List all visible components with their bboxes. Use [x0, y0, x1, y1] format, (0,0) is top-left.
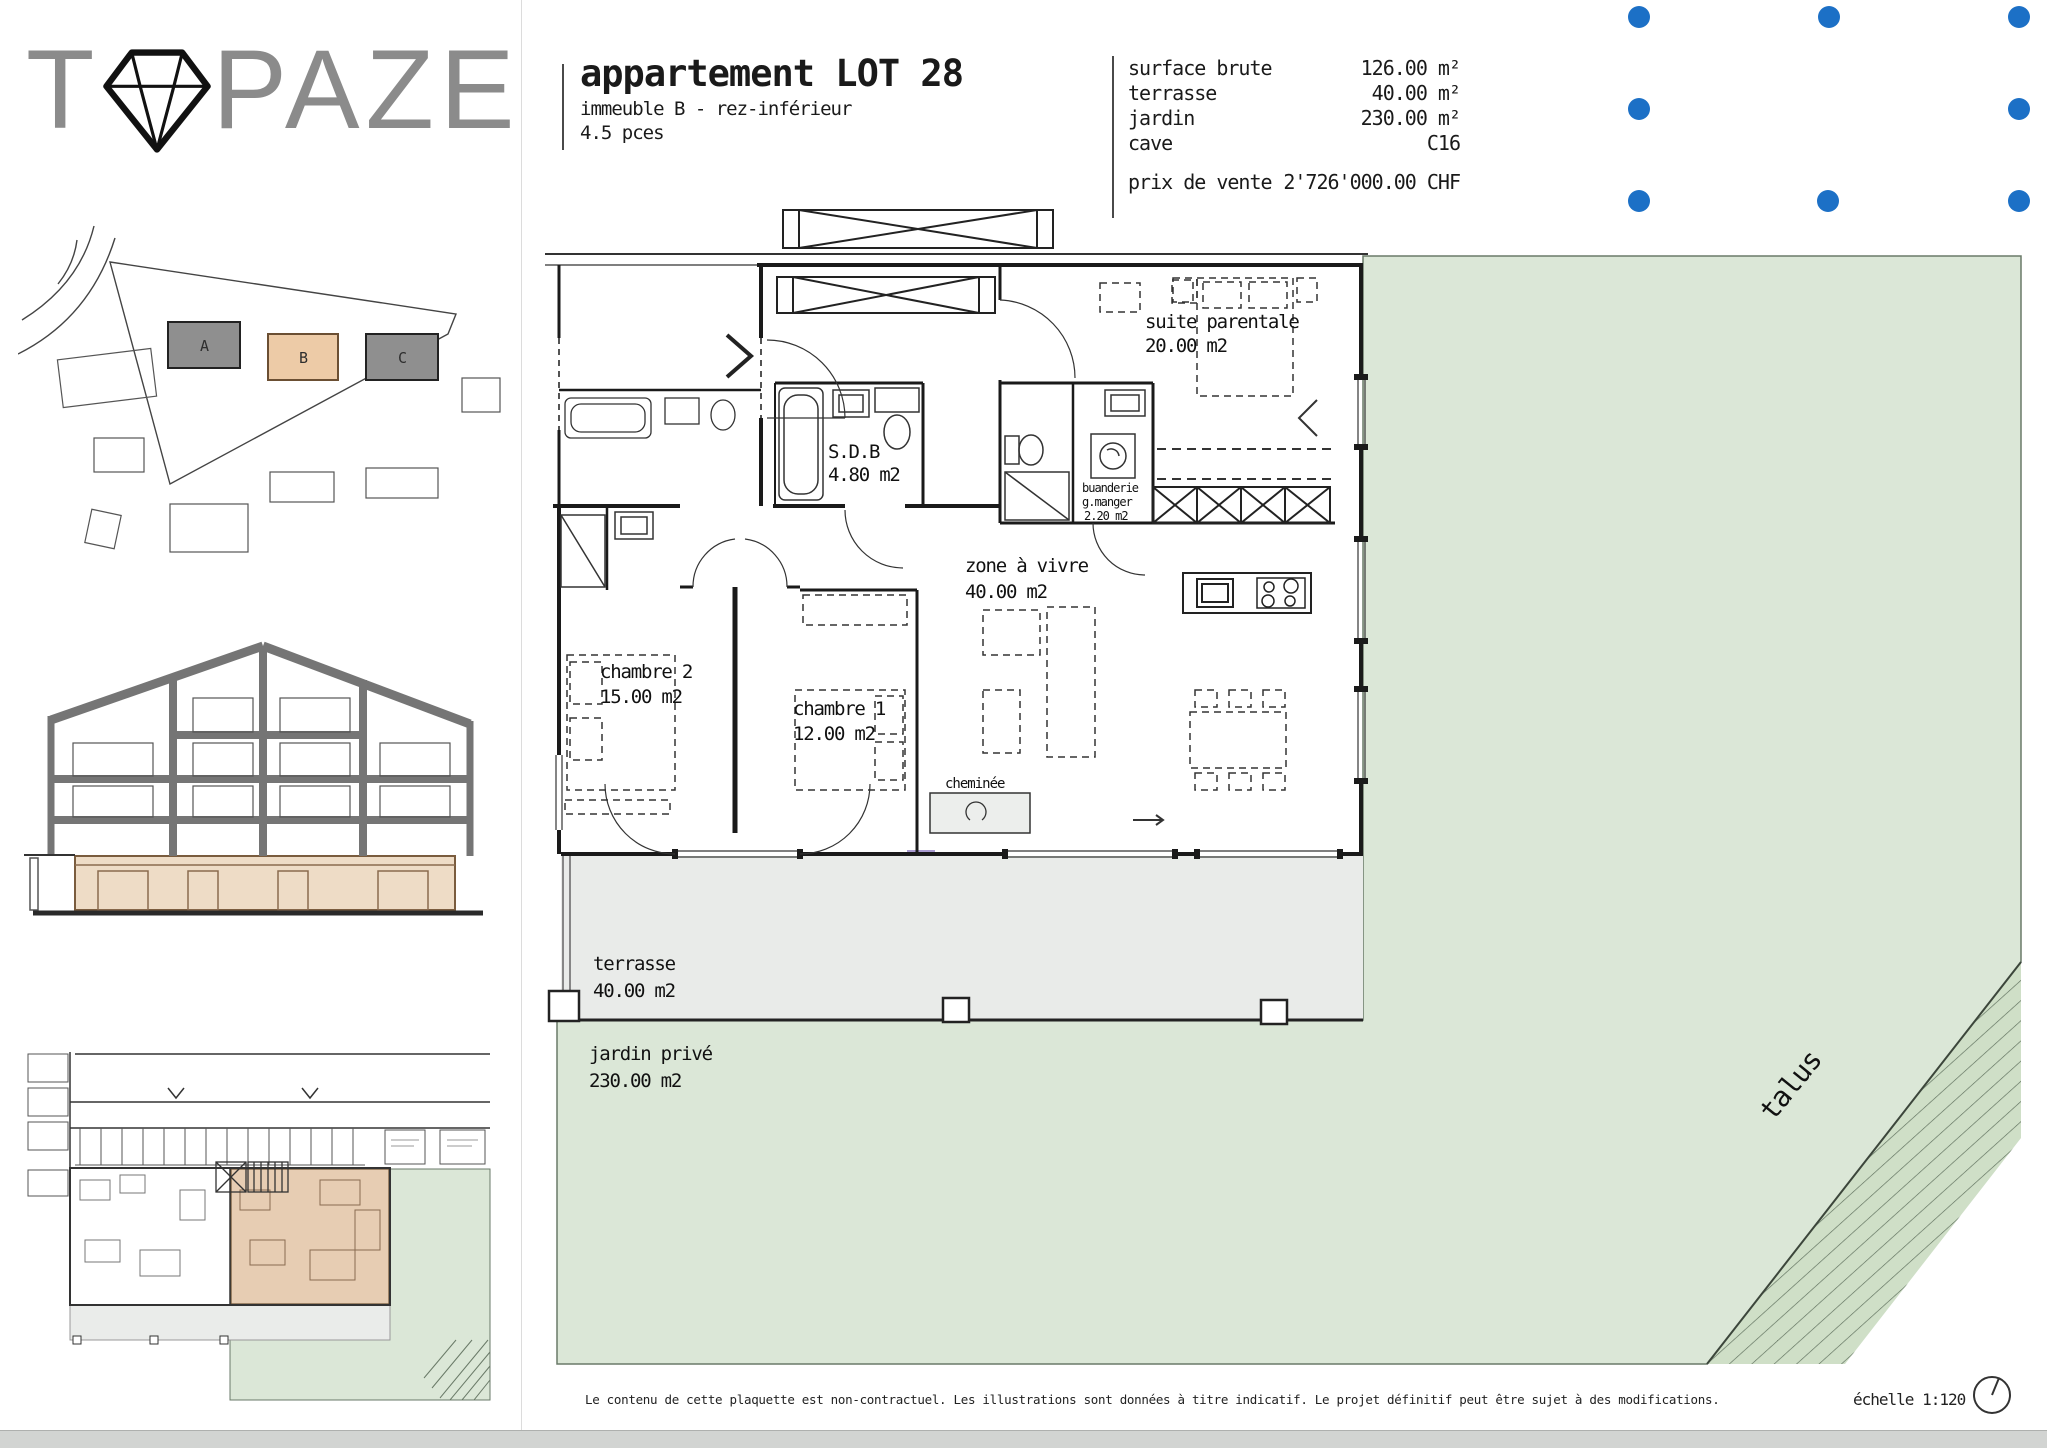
- sink-icon: [833, 390, 869, 417]
- chambre1-area: 12.00 m2: [793, 723, 875, 745]
- keyplan-highlighted-unit: [231, 1169, 389, 1304]
- main-floor-plan: talus: [545, 200, 2047, 1372]
- keyplan-terrace: [70, 1305, 390, 1340]
- table-row: jardin 230.00 m²: [1128, 106, 1460, 131]
- section-ground-floor: [75, 856, 455, 910]
- suite-label: suite parentale: [1145, 311, 1299, 333]
- key-plan: [20, 1040, 520, 1440]
- bathtub-icon: [779, 388, 823, 500]
- surface-value: 126.00 m²: [1361, 56, 1460, 81]
- sink-icon: [615, 512, 653, 539]
- sofa: [983, 607, 1095, 757]
- jardin-label: jardin: [1128, 106, 1194, 131]
- blue-dot: [2008, 98, 2030, 120]
- toilet-icon: [875, 388, 919, 449]
- price-label: prix de vente: [1128, 170, 1272, 195]
- surface-label: surface brute: [1128, 56, 1272, 81]
- entry-arrow-icon: [727, 335, 751, 377]
- scale-label: échelle 1:120: [1853, 1390, 1965, 1409]
- terrace-area: [561, 856, 1363, 1020]
- section-cut-mark: [302, 1088, 318, 1098]
- terrace-label: terrasse: [593, 953, 676, 975]
- garden-area-label: 230.00 m2: [589, 1070, 681, 1092]
- shower-icon: [561, 515, 605, 587]
- building-section: [18, 618, 518, 953]
- rooms-count: 4.5 pces: [580, 122, 664, 144]
- suite-area: 20.00 m2: [1145, 335, 1227, 357]
- title-rule: [562, 64, 564, 150]
- price-value: 2'726'000.00 CHF: [1283, 170, 1460, 195]
- garden-area: [557, 256, 2021, 1364]
- jardin-value: 230.00 m²: [1361, 106, 1460, 131]
- garden-label: jardin privé: [589, 1043, 713, 1065]
- north-compass-icon: [1965, 1366, 2021, 1422]
- toilet-icon: [1005, 435, 1043, 465]
- table-rule: [1112, 56, 1114, 218]
- building-b-label: B: [299, 349, 308, 367]
- logo-letter-t: T: [26, 38, 100, 142]
- cave-value: C16: [1427, 131, 1460, 156]
- dining-table: [1190, 690, 1286, 790]
- table-row: terrasse 40.00 m²: [1128, 81, 1460, 106]
- washing-machine-icon: [1091, 434, 1135, 478]
- disclaimer-text: Le contenu de cette plaquette est non-co…: [585, 1392, 1795, 1407]
- topaze-logo: T PAZE: [26, 38, 521, 156]
- buanderie-label: buanderie: [1082, 481, 1139, 495]
- diamond-icon: [98, 44, 216, 156]
- building-c-label: C: [398, 349, 407, 367]
- plaquette-page: T PAZE appartement LOT 28 immeuble B - r…: [0, 0, 2047, 1448]
- cheminee-label: cheminée: [945, 776, 1005, 792]
- sdb-label: S.D.B: [828, 441, 880, 463]
- suite-closet: [1153, 487, 1330, 523]
- living-label: zone à vivre: [965, 555, 1089, 577]
- price-row: prix de vente 2'726'000.00 CHF: [1128, 170, 1460, 195]
- garden-door-arrow-icon: [1299, 400, 1317, 436]
- blue-dots-grid: [1620, 0, 2047, 225]
- chambre2-label: chambre 2: [600, 661, 692, 683]
- slide-arrow-icon: [1133, 815, 1163, 825]
- living-area: 40.00 m2: [965, 581, 1047, 603]
- neighbour-bathroom: [565, 398, 735, 438]
- corridor-storage: [783, 210, 1053, 248]
- vanity-icon: [1105, 390, 1145, 416]
- hall-wardrobe: [777, 277, 995, 313]
- blue-dot: [1628, 98, 1650, 120]
- buanderie-label2: g.manger: [1082, 495, 1133, 509]
- chambre2-area: 15.00 m2: [600, 686, 682, 708]
- table-row: cave C16: [1128, 131, 1460, 156]
- kitchen-sink-icon: [1197, 579, 1233, 607]
- building-a-label: A: [200, 337, 209, 355]
- blue-dot: [1818, 6, 1840, 28]
- cave-label: cave: [1128, 131, 1172, 156]
- chambre1-bed: [795, 595, 907, 790]
- fireplace-bench: [930, 793, 1030, 833]
- hob-icon: [1257, 578, 1305, 608]
- terrasse-label: terrasse: [1128, 81, 1216, 106]
- logo-letters-paze: PAZE: [212, 38, 520, 142]
- table-row: surface brute 126.00 m²: [1128, 56, 1460, 81]
- chambre1-label: chambre 1: [793, 698, 886, 720]
- surface-table: surface brute 126.00 m² terrasse 40.00 m…: [1128, 56, 1460, 195]
- section-cut-mark: [168, 1088, 184, 1098]
- page-title: appartement LOT 28: [580, 52, 963, 95]
- kitchen-counter: [1183, 573, 1311, 613]
- suite-limit-dashed: [1157, 449, 1335, 479]
- shower-icon: [1005, 472, 1069, 520]
- terrasse-value: 40.00 m²: [1372, 81, 1460, 106]
- blue-dot: [1628, 6, 1650, 28]
- buanderie-area: 2.20 m2: [1084, 509, 1128, 523]
- column-divider: [521, 0, 522, 1430]
- site-plan: A B C: [18, 222, 503, 554]
- page-subtitle: immeuble B - rez-inférieur: [580, 98, 851, 120]
- sdb-area: 4.80 m2: [828, 464, 900, 486]
- terrace-area: 40.00 m2: [593, 980, 675, 1002]
- blue-dot: [2008, 6, 2030, 28]
- viewer-bottom-bar: [0, 1430, 2047, 1448]
